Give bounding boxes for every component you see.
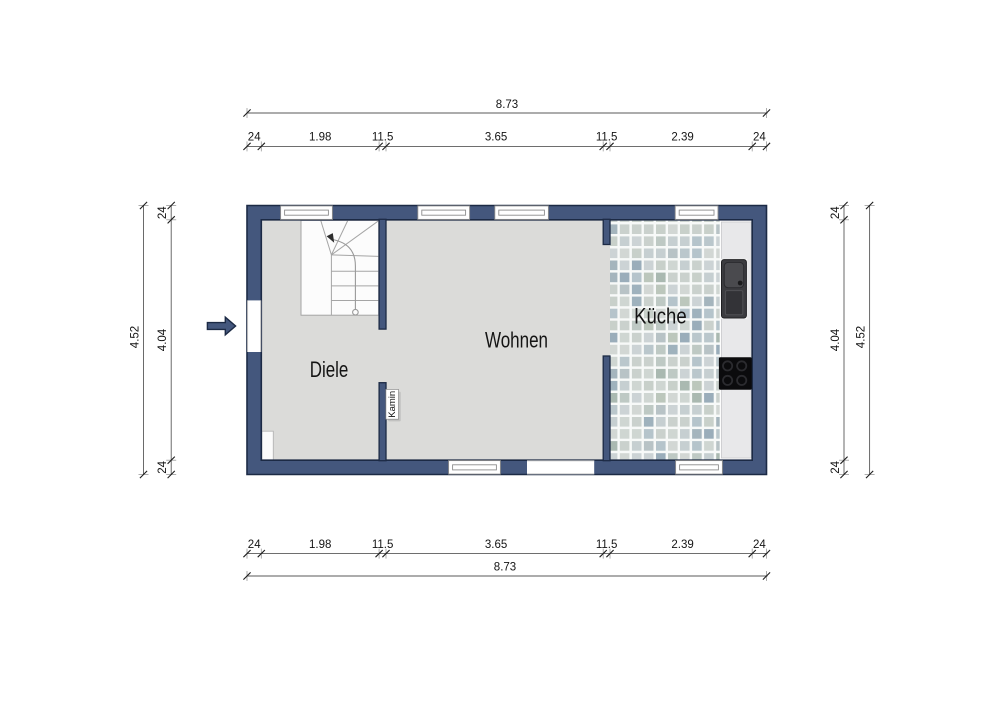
svg-text:4.52: 4.52 [856,326,868,348]
svg-text:Wohnen: Wohnen [485,328,548,353]
svg-text:Diele: Diele [310,357,349,382]
svg-text:8.73: 8.73 [494,562,516,574]
svg-text:8.73: 8.73 [496,99,518,111]
svg-text:11.5: 11.5 [372,539,394,551]
svg-text:4.52: 4.52 [130,326,142,348]
svg-text:24: 24 [157,460,169,473]
svg-text:24: 24 [830,460,842,473]
svg-text:24: 24 [753,132,766,144]
svg-text:2.39: 2.39 [671,132,693,144]
svg-text:3.65: 3.65 [485,132,507,144]
svg-text:4.04: 4.04 [157,328,169,351]
svg-text:24: 24 [753,539,766,551]
svg-text:4.04: 4.04 [830,328,842,351]
svg-text:24: 24 [157,206,169,219]
svg-text:Kamin: Kamin [387,391,398,418]
svg-text:24: 24 [248,539,261,551]
svg-text:11.5: 11.5 [596,539,618,551]
svg-text:Küche: Küche [634,304,687,329]
svg-text:11.5: 11.5 [372,132,394,144]
svg-text:24: 24 [248,132,261,144]
svg-text:11.5: 11.5 [596,132,618,144]
svg-text:3.65: 3.65 [485,539,507,551]
svg-text:24: 24 [830,206,842,219]
svg-text:2.39: 2.39 [671,539,693,551]
svg-text:1.98: 1.98 [309,539,331,551]
svg-text:1.98: 1.98 [309,132,331,144]
